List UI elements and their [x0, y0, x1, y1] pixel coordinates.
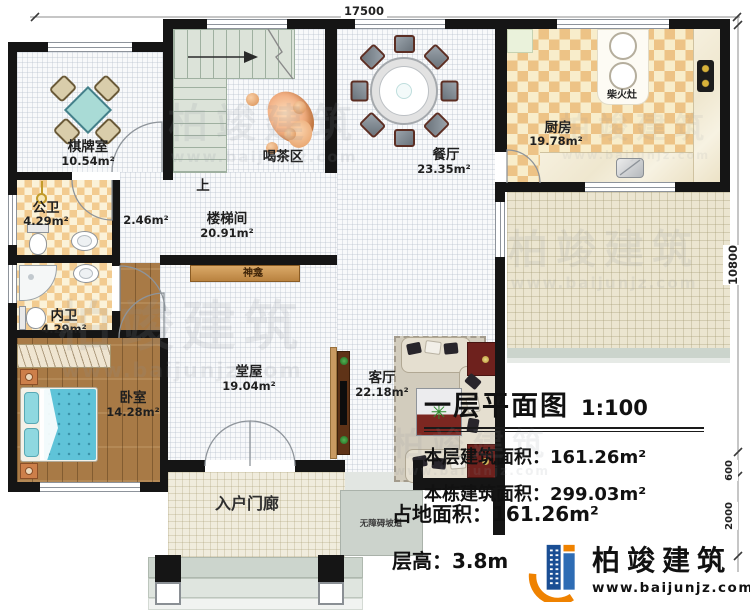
room-area-bedroom: 14.28m² — [106, 407, 159, 419]
kitchen-sink — [616, 158, 644, 178]
kitchen-prep-counter — [507, 29, 533, 53]
room-area-chess: 10.54m² — [61, 156, 114, 168]
toilet-bowl — [29, 233, 47, 255]
logo-building-2 — [563, 553, 574, 589]
label-shrine: 神龛 — [243, 269, 263, 279]
wood-stove-burner — [609, 32, 637, 60]
sink-basin — [77, 235, 92, 247]
wall — [160, 460, 205, 472]
side-table-ornament — [482, 356, 489, 363]
room-area-hall: 19.04m² — [222, 381, 275, 393]
room-area-inner-bath: 4.29m² — [41, 324, 86, 336]
wall — [8, 172, 72, 180]
wall — [720, 19, 730, 192]
window — [585, 182, 675, 192]
title-underline — [424, 427, 704, 429]
wall — [8, 255, 112, 263]
floor-area-value: 161.26m² — [550, 447, 646, 468]
room-label-bedroom: 卧室 — [120, 392, 147, 406]
porch-column-base — [318, 582, 344, 605]
dining-chair — [394, 129, 415, 147]
sofa-pillow — [443, 342, 458, 354]
logo-website: www.baijunjz.com — [592, 580, 750, 596]
area-nook: 2.46m² — [123, 215, 168, 227]
floor-entry-porch — [168, 472, 345, 557]
dining-chair — [351, 81, 369, 102]
tea-stool — [293, 101, 306, 114]
floor-terrace — [507, 192, 730, 348]
label-up: 上 — [196, 180, 210, 194]
room-area-living: 22.18m² — [355, 387, 408, 399]
wall — [112, 311, 120, 330]
room-label-dining: 餐厅 — [433, 149, 460, 163]
bed-pillow — [24, 392, 39, 424]
tv-screen — [340, 381, 347, 425]
dim-right-porch: 2000 — [721, 502, 738, 530]
terrace-edge — [507, 348, 730, 358]
title-underline-thin — [424, 431, 704, 432]
porch-column — [318, 555, 344, 582]
room-label-entry-porch: 入户门廊 — [215, 496, 279, 512]
wall — [325, 19, 337, 173]
plant-small — [340, 436, 348, 444]
dim-top-width: 17500 — [341, 4, 387, 18]
shower-drain — [28, 274, 34, 280]
floor-plan-canvas: ✳ — [0, 0, 750, 611]
wall — [160, 255, 337, 265]
kitchen-counter-right — [693, 29, 720, 182]
room-area-stairwell: 20.91m² — [200, 228, 253, 240]
window — [48, 42, 132, 52]
stair-upper-flight — [173, 29, 295, 79]
plan-title: 一层平面图 — [424, 384, 569, 423]
window — [40, 482, 140, 492]
label-wood-stove: 柴火灶 — [607, 91, 637, 101]
porch-column — [155, 555, 181, 582]
title-block: 一层平面图 1:100 本层建筑面积：161.26m² 本栋建筑面积：299.0… — [424, 384, 734, 506]
logo-building-1 — [547, 545, 561, 590]
wall — [163, 19, 173, 180]
dining-chair — [441, 81, 459, 102]
bed-pillow — [24, 428, 39, 457]
window — [8, 195, 17, 245]
stair-lower-flight — [173, 79, 227, 173]
room-area-public-bath: 4.29m² — [23, 216, 68, 228]
room-area-dining: 23.35m² — [417, 164, 470, 176]
floor-area-label: 本层建筑面积： — [424, 447, 550, 468]
wall — [495, 19, 507, 152]
window — [557, 19, 669, 29]
room-label-living: 客厅 — [369, 372, 396, 386]
wall — [112, 180, 120, 266]
storey-height-value: 3.8m — [452, 549, 508, 573]
wood-stove-burner — [609, 62, 637, 90]
tea-stool — [284, 128, 296, 140]
floor-bedroom-vestibule — [120, 263, 160, 338]
floor-area-line: 本层建筑面积：161.26m² — [424, 443, 734, 469]
logo-roof — [563, 545, 574, 552]
terrace-edge-light — [507, 358, 730, 363]
room-area-kitchen: 19.78m² — [529, 136, 582, 148]
room-label-chess: 棋牌室 — [68, 141, 109, 155]
plan-scale: 1:100 — [581, 396, 648, 420]
sink-basin — [79, 268, 93, 279]
window — [8, 265, 17, 303]
dining-chair — [394, 35, 415, 53]
room-label-hall: 堂屋 — [236, 366, 263, 380]
room-label-stairwell: 楼梯间 — [207, 213, 248, 227]
dining-table-center — [396, 83, 412, 99]
toilet-tank — [19, 306, 26, 330]
window — [207, 19, 287, 29]
company-logo: 柏竣建筑 www.baijunjz.com — [528, 540, 750, 602]
wall — [295, 460, 345, 472]
dim-right-height: 10800 — [723, 245, 743, 285]
tea-stool — [246, 93, 259, 106]
sofa-pillow — [424, 340, 442, 355]
storey-height-label: 层高： — [392, 549, 452, 573]
logo-name: 柏竣建筑 — [592, 546, 750, 577]
room-label-tea-area: 喝茶区 — [263, 151, 304, 165]
site-area-line: 占地面积：161.26m² — [392, 498, 599, 527]
logo-icon — [528, 540, 584, 602]
nightstand-knob — [25, 467, 33, 475]
terrace-door — [495, 202, 505, 257]
plan-title-row: 一层平面图 1:100 — [424, 384, 734, 423]
tv-feature-wall — [330, 347, 337, 459]
logo-text-group: 柏竣建筑 www.baijunjz.com — [592, 546, 750, 596]
entry-door-opening — [205, 460, 295, 472]
window — [355, 19, 445, 29]
site-area-value: 161.26m² — [492, 502, 599, 526]
porch-column-base — [155, 582, 181, 605]
site-area-label: 占地面积： — [392, 502, 492, 526]
plant-small — [340, 357, 348, 365]
wardrobe — [17, 344, 111, 368]
nightstand-knob — [25, 373, 33, 381]
gas-stove — [697, 60, 714, 92]
